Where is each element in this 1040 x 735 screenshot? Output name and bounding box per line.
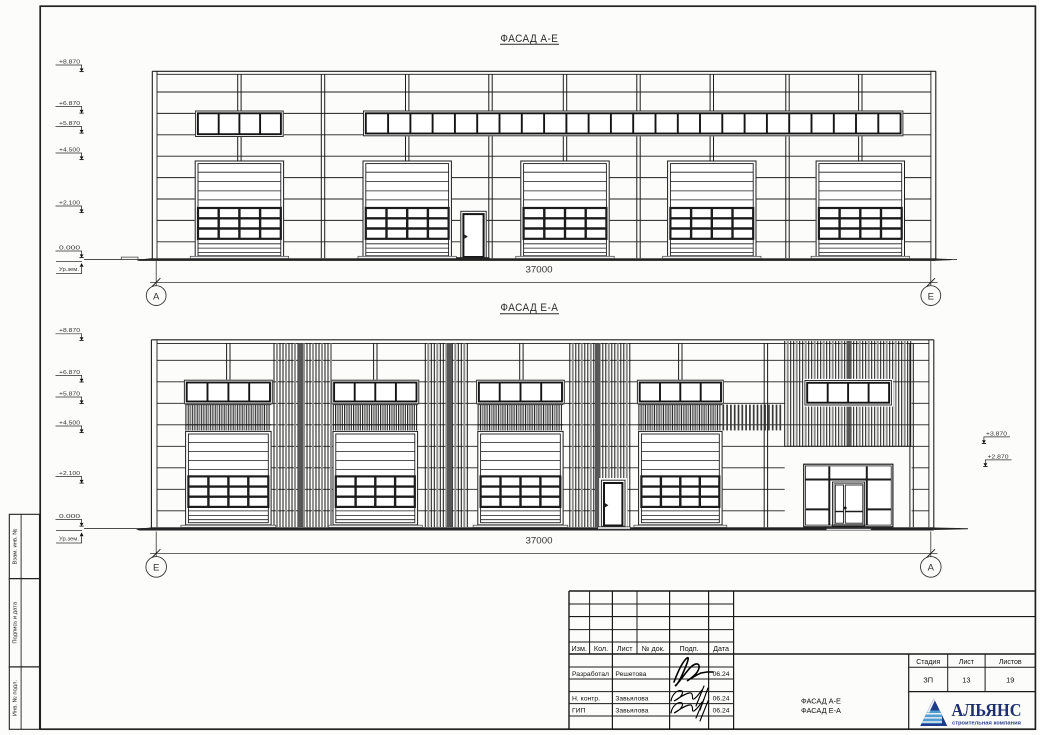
svg-text:37000: 37000	[526, 265, 553, 275]
svg-text:+8.870: +8.870	[59, 328, 80, 334]
svg-text:+2.870: +2.870	[988, 454, 1009, 460]
svg-text:+3.870: +3.870	[986, 431, 1007, 437]
svg-text:Листов: Листов	[999, 659, 1022, 666]
svg-text:Изм.: Изм.	[571, 644, 586, 653]
svg-text:№ док.: № док.	[642, 644, 665, 653]
svg-text:+5.870: +5.870	[59, 391, 80, 397]
svg-text:+4.500: +4.500	[59, 147, 80, 153]
svg-text:ФАСАД Е-А: ФАСАД Е-А	[500, 302, 558, 314]
svg-text:+4.500: +4.500	[59, 420, 80, 426]
svg-text:19: 19	[1006, 676, 1014, 685]
svg-text:Е: Е	[928, 291, 934, 302]
svg-text:Дата: Дата	[713, 644, 729, 653]
svg-text:Подпись и дата: Подпись и дата	[13, 601, 19, 643]
svg-text:ФАСАД А-Е: ФАСАД А-Е	[801, 696, 841, 705]
svg-text:Лист: Лист	[959, 659, 975, 666]
svg-text:+8.870: +8.870	[59, 59, 80, 65]
svg-text:Ур.зем.: Ур.зем.	[59, 267, 79, 273]
svg-text:Инв. № подл.: Инв. № подл.	[13, 680, 19, 716]
svg-text:АЛЬЯНС: АЛЬЯНС	[952, 700, 1022, 720]
svg-text:Подп.: Подп.	[680, 644, 699, 653]
svg-text:А: А	[153, 291, 160, 302]
svg-text:ФАСАД А-Е: ФАСАД А-Е	[500, 33, 558, 45]
svg-text:Завьялова: Завьялова	[615, 695, 648, 702]
svg-text:+2.100: +2.100	[59, 471, 80, 477]
svg-text:13: 13	[962, 676, 970, 685]
svg-text:Решетова: Решетова	[615, 671, 646, 678]
svg-text:ГИП: ГИП	[572, 708, 586, 715]
svg-text:+5.870: +5.870	[59, 121, 80, 127]
svg-text:0.000: 0.000	[59, 245, 80, 251]
svg-text:06.24: 06.24	[713, 671, 730, 678]
svg-text:0.000: 0.000	[59, 514, 80, 520]
svg-text:строительная компания: строительная компания	[952, 721, 1021, 727]
svg-text:+6.870: +6.870	[59, 370, 80, 376]
svg-text:Завьялова: Завьялова	[615, 708, 648, 715]
svg-text:Кол.: Кол.	[594, 644, 608, 653]
svg-text:Взам. инв. №: Взам. инв. №	[13, 529, 19, 565]
svg-text:+6.870: +6.870	[59, 101, 80, 107]
svg-text:Разработал: Разработал	[572, 670, 609, 678]
svg-text:+2.100: +2.100	[59, 200, 80, 206]
svg-text:Е: Е	[153, 563, 159, 574]
svg-text:06.24: 06.24	[713, 708, 730, 715]
svg-text:ФАСАД Е-А: ФАСАД Е-А	[801, 706, 841, 715]
svg-text:А: А	[928, 563, 935, 574]
svg-text:37000: 37000	[526, 536, 553, 546]
svg-text:06.24: 06.24	[713, 695, 730, 702]
svg-text:Лист: Лист	[617, 644, 633, 653]
svg-text:Стадия: Стадия	[916, 659, 940, 666]
svg-text:Н. контр.: Н. контр.	[572, 695, 600, 702]
svg-text:ЗП: ЗП	[923, 676, 933, 685]
svg-text:Ур.зем.: Ур.зем.	[59, 537, 79, 543]
